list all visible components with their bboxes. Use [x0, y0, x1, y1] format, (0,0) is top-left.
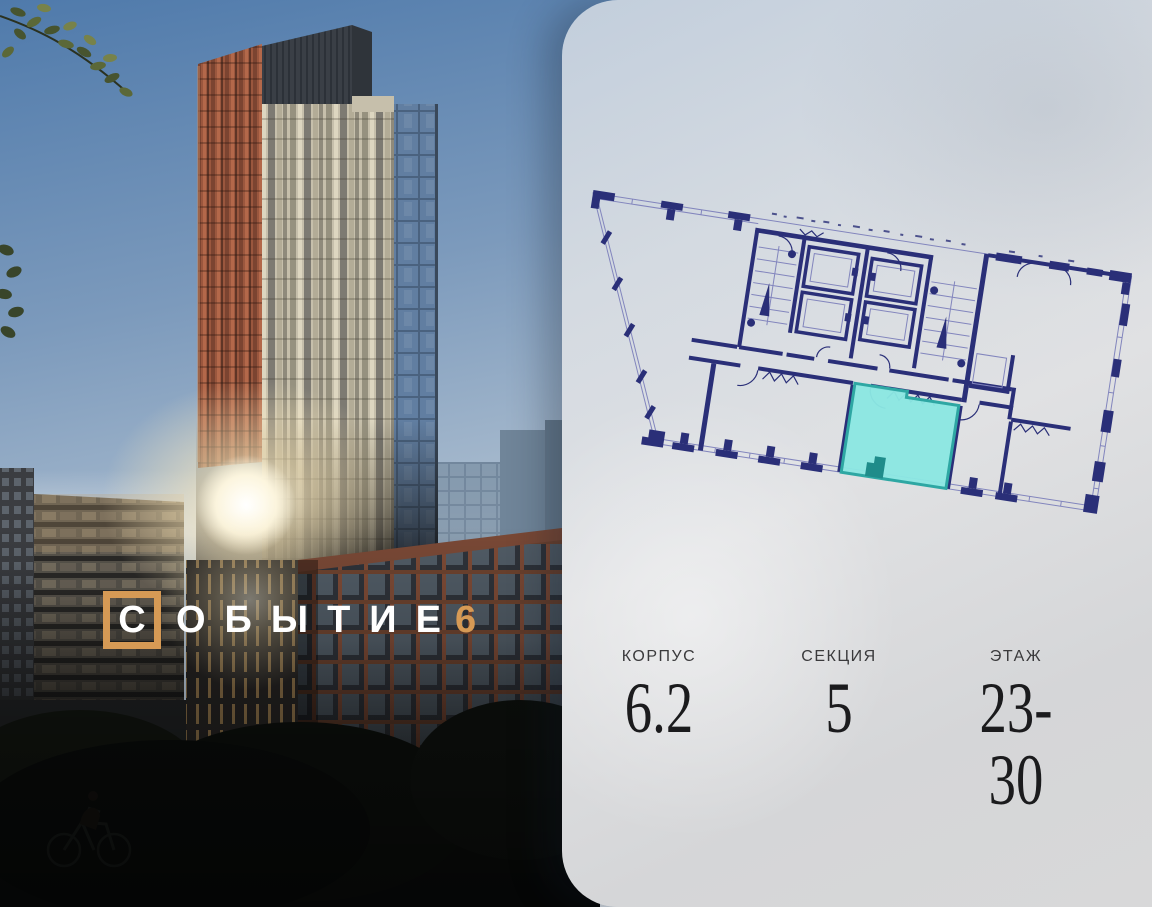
- info-etazh: ЭТАЖ 23-30: [948, 648, 1084, 816]
- logo-wordmark: ОБЫТИЕ: [176, 601, 460, 639]
- info-korpus-label: КОРПУС: [614, 648, 704, 666]
- page: С ОБЫТИЕ 6: [0, 0, 1152, 907]
- highlighted-unit[interactable]: [841, 383, 960, 488]
- logo-first-letter: С: [118, 601, 145, 639]
- bottom-vignette: [0, 0, 600, 907]
- info-sektsiya-value: 5: [810, 672, 867, 744]
- info-etazh-label: ЭТАЖ: [948, 648, 1084, 666]
- logo-number: 6: [455, 601, 476, 639]
- floorplan-card: КОРПУС 6.2 СЕКЦИЯ 5 ЭТАЖ 23-30: [562, 0, 1152, 907]
- info-etazh-value: 23-30: [964, 672, 1067, 816]
- info-korpus-value: 6.2: [625, 672, 693, 744]
- brand-logo: С ОБЫТИЕ 6: [103, 591, 476, 649]
- apartment-info: КОРПУС 6.2 СЕКЦИЯ 5 ЭТАЖ 23-30: [562, 648, 1152, 768]
- info-korpus: КОРПУС 6.2: [614, 648, 704, 744]
- info-sektsiya-label: СЕКЦИЯ: [801, 648, 876, 666]
- info-sektsiya: СЕКЦИЯ 5: [801, 648, 876, 744]
- logo-square-frame: С: [103, 591, 161, 649]
